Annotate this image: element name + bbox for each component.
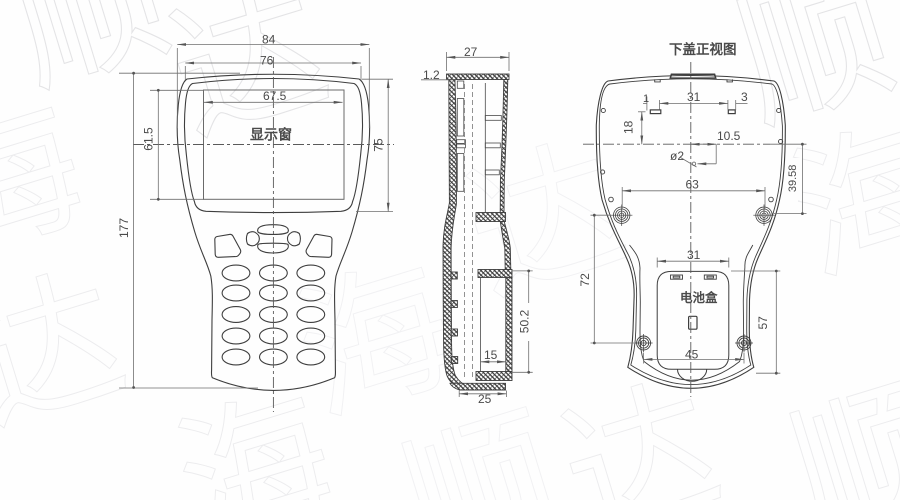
svg-text:177: 177	[117, 218, 131, 238]
svg-text:67.5: 67.5	[263, 89, 287, 103]
svg-text:25: 25	[478, 392, 492, 406]
svg-text:电池盒: 电池盒	[680, 290, 718, 305]
svg-text:63: 63	[686, 178, 700, 192]
svg-text:75: 75	[372, 138, 386, 152]
svg-text:15: 15	[484, 348, 498, 362]
svg-text:下盖正视图: 下盖正视图	[669, 41, 737, 57]
svg-text:10.5: 10.5	[717, 129, 741, 143]
svg-text:31: 31	[687, 90, 701, 104]
svg-text:顺: 顺	[772, 359, 900, 500]
svg-text:31: 31	[687, 248, 701, 262]
svg-text:50.2: 50.2	[518, 309, 532, 333]
svg-text:1: 1	[643, 93, 649, 105]
svg-text:57: 57	[756, 316, 770, 330]
svg-text:61.5: 61.5	[142, 127, 156, 151]
svg-text:18: 18	[622, 120, 636, 134]
svg-text:显示窗: 显示窗	[250, 127, 292, 143]
svg-text:ø2: ø2	[670, 149, 684, 163]
svg-text:1.2: 1.2	[423, 68, 440, 82]
svg-text:27: 27	[464, 45, 478, 59]
svg-text:达: 达	[152, 0, 345, 163]
svg-text:3: 3	[741, 90, 748, 104]
svg-text:达: 达	[544, 359, 737, 500]
svg-text:84: 84	[262, 33, 276, 47]
svg-text:45: 45	[685, 348, 699, 362]
svg-text:76: 76	[260, 54, 274, 68]
svg-text:达: 达	[0, 249, 142, 454]
svg-text:39.58: 39.58	[787, 165, 799, 193]
svg-text:72: 72	[578, 273, 592, 287]
